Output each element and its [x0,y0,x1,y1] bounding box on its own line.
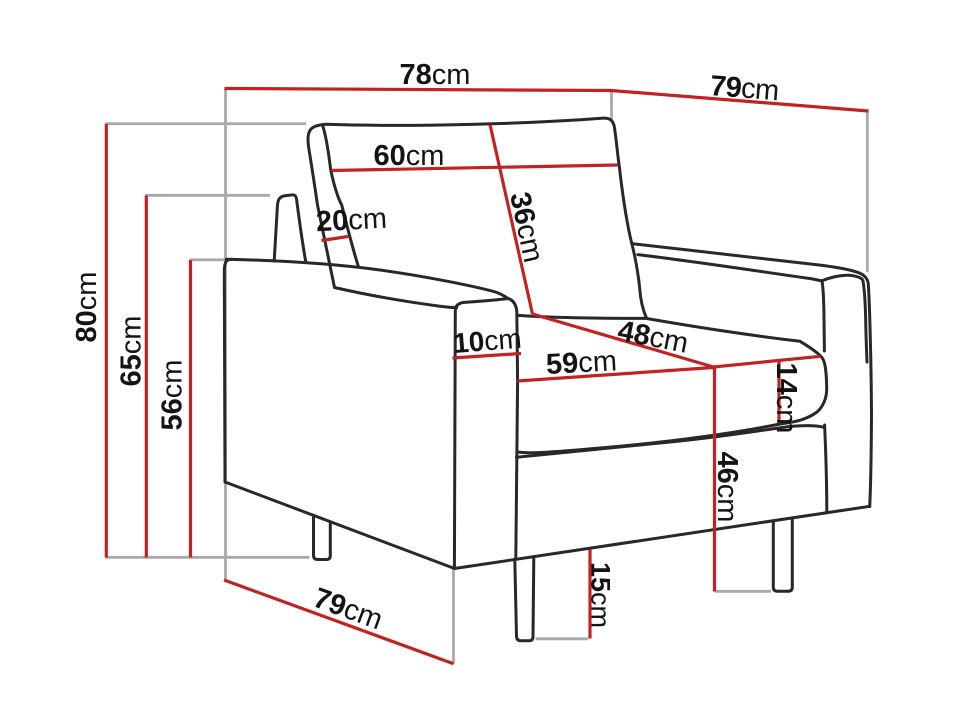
svg-text:79cm: 79cm [709,70,780,107]
svg-text:65cm: 65cm [116,316,148,387]
svg-text:80cm: 80cm [71,272,103,343]
svg-text:78cm: 78cm [400,59,471,91]
svg-text:20cm: 20cm [315,203,388,239]
svg-text:10cm: 10cm [452,323,523,359]
svg-text:46cm: 46cm [711,452,743,523]
svg-text:14cm: 14cm [770,363,802,434]
svg-text:15cm: 15cm [586,562,616,628]
svg-text:60cm: 60cm [374,140,445,172]
svg-text:59cm: 59cm [545,345,618,381]
svg-text:56cm: 56cm [157,360,189,431]
